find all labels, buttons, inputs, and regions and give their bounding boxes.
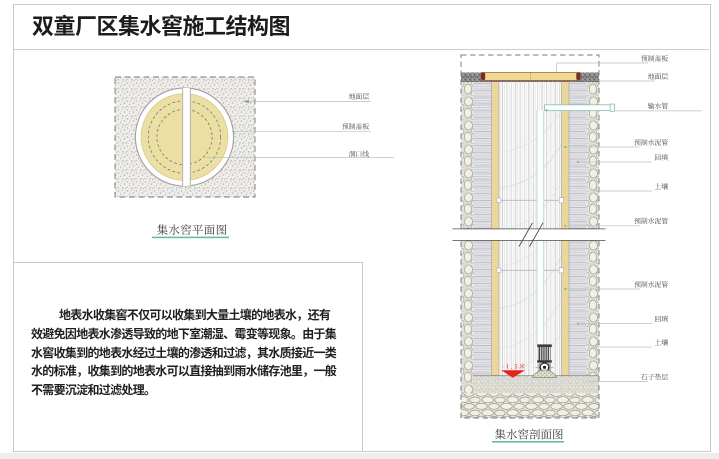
svg-text:集水窖平面图: 集水窖平面图 [157, 222, 228, 238]
svg-text:土壤: 土壤 [654, 182, 668, 192]
svg-text:地面层: 地面层 [648, 72, 669, 82]
svg-text:输水管: 输水管 [648, 102, 669, 112]
svg-text:预制盖板: 预制盖板 [641, 54, 668, 64]
svg-text:回填: 回填 [654, 314, 668, 324]
svg-text:预制盖板: 预制盖板 [342, 122, 369, 132]
svg-text:-1.5米: -1.5米 [503, 362, 527, 371]
svg-text:地面层: 地面层 [349, 92, 370, 102]
svg-text:回填: 回填 [654, 153, 668, 163]
svg-text:预制水泥管: 预制水泥管 [634, 280, 668, 290]
svg-text:石子垫层: 石子垫层 [641, 372, 668, 382]
svg-text:集水窖剖面图: 集水窖剖面图 [495, 426, 564, 442]
svg-text:土壤: 土壤 [654, 338, 668, 348]
svg-text:洞口线: 洞口线 [349, 149, 370, 159]
svg-text:预制水泥管: 预制水泥管 [634, 138, 668, 148]
svg-text:预制水泥管: 预制水泥管 [634, 217, 668, 227]
